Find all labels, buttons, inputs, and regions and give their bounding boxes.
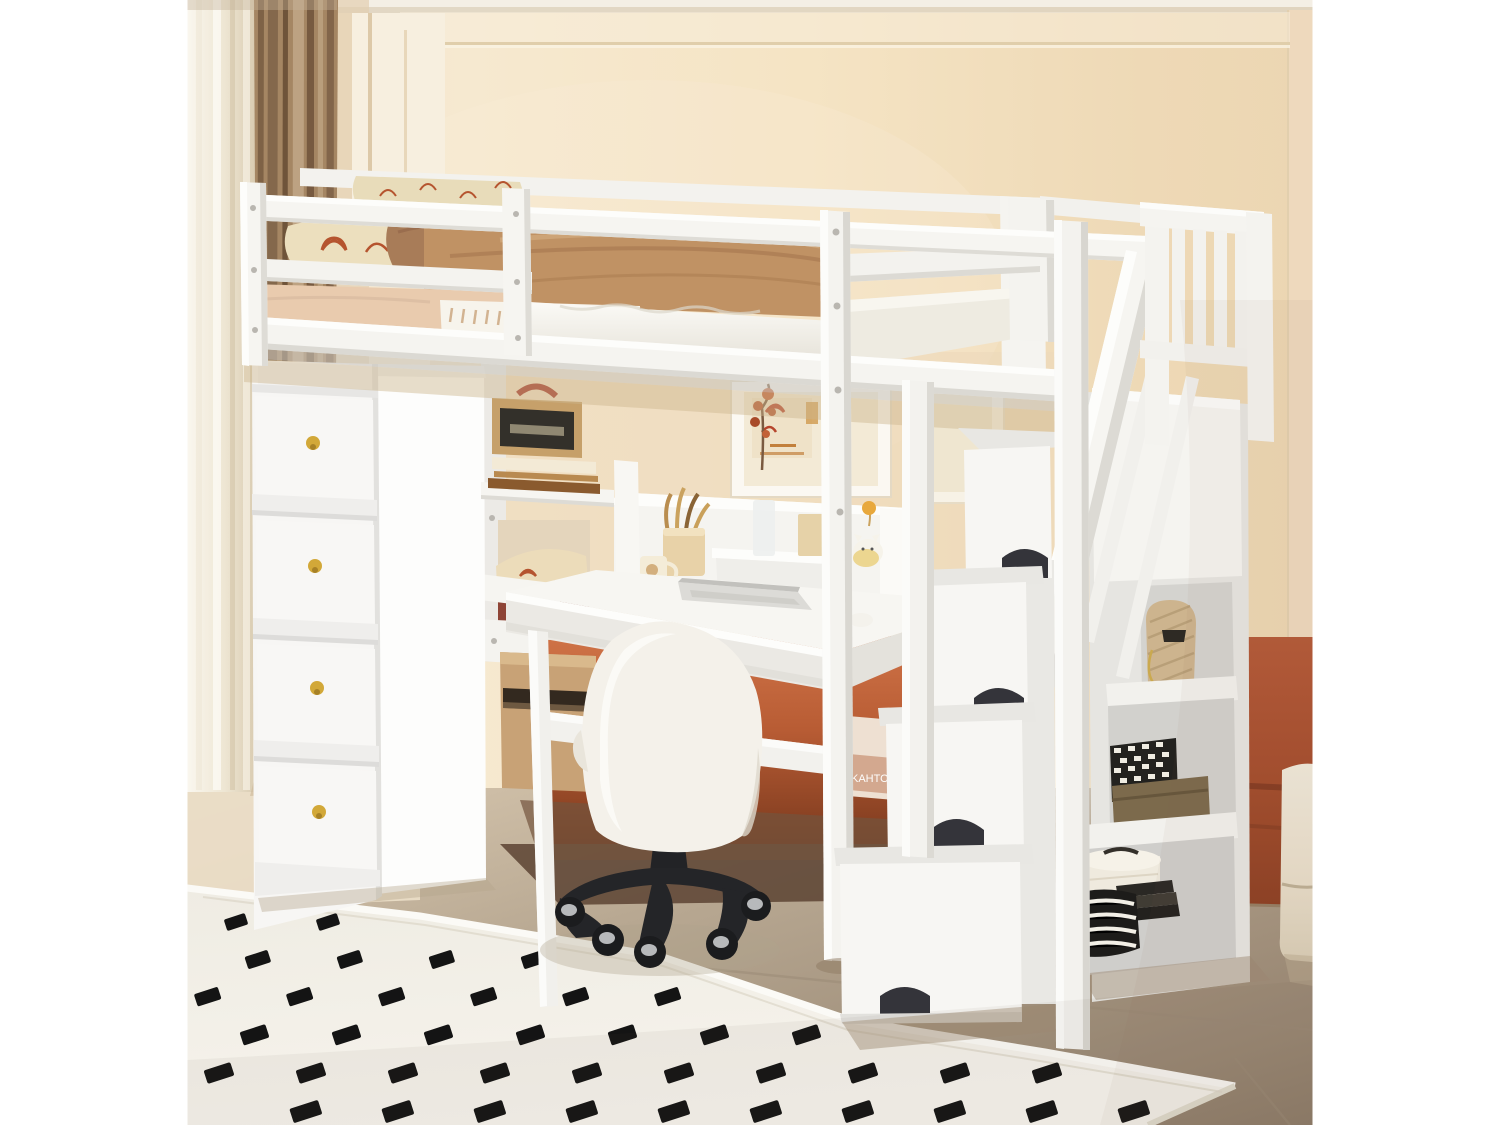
- svg-text:KAHTO: KAHTO: [851, 773, 889, 785]
